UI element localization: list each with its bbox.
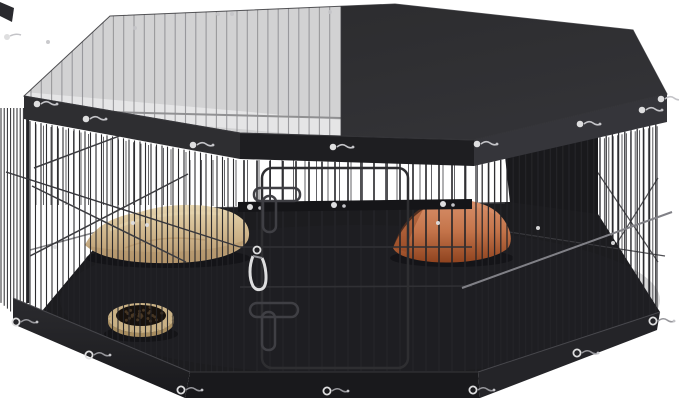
food-bowl xyxy=(104,303,178,342)
product-photo xyxy=(0,0,679,411)
playpen-product-image xyxy=(0,0,679,411)
